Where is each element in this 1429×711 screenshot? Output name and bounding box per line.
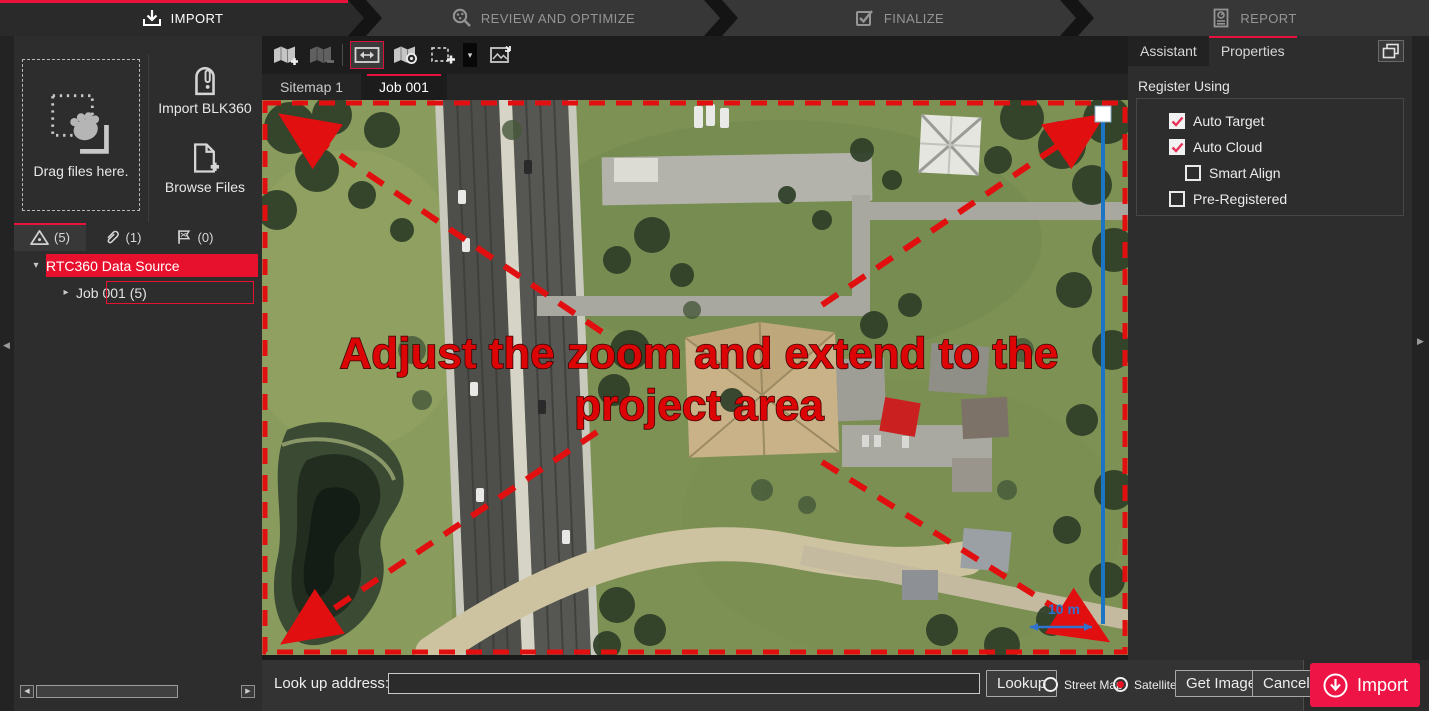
dropzone-label: Drag files here. xyxy=(34,163,129,179)
expand-right-icon[interactable]: ▶ xyxy=(1417,336,1424,347)
tab-links[interactable]: (0) xyxy=(158,223,230,251)
right-panel-tabs: Assistant Properties xyxy=(1128,36,1412,66)
blk360-device-icon xyxy=(192,64,218,96)
checkbox-label: Auto Target xyxy=(1193,113,1264,129)
tab-sitemap-1[interactable]: Sitemap 1 xyxy=(262,74,361,100)
workflow-step-label: REVIEW AND OPTIMIZE xyxy=(481,11,635,26)
file-plus-icon xyxy=(191,141,219,175)
properties-panel: Assistant Properties Register Using Auto… xyxy=(1128,36,1412,660)
checkbox-unchecked-icon xyxy=(1185,165,1201,181)
tree-item-label: RTC360 Data Source xyxy=(46,258,180,274)
add-sitemap-button[interactable] xyxy=(268,41,302,69)
address-lookup-bar: Look up address: Lookup Street Map Satel… xyxy=(262,660,1429,711)
scroll-right-button[interactable]: ▶ xyxy=(241,685,255,698)
register-using-group: Auto Target Auto Cloud Smart Align Pre-R… xyxy=(1136,98,1404,216)
workflow-step-label: FINALIZE xyxy=(884,11,944,26)
left-collapse-strip[interactable]: ◀ xyxy=(0,36,14,711)
sitemap-toolbar: ▾ xyxy=(262,36,1128,74)
checkbox-unchecked-icon xyxy=(1169,191,1185,207)
satellite-map-canvas[interactable]: 10 m Adjust the zoom and extend to the p… xyxy=(262,100,1128,655)
tree-item-job-001[interactable]: ▸ Job 001 (5) xyxy=(60,281,262,304)
checkbox-label: Pre-Registered xyxy=(1193,191,1287,207)
scale-label: 10 m xyxy=(1048,601,1080,617)
caret-down-icon[interactable]: ▾ xyxy=(30,260,42,271)
checkbox-checked-icon xyxy=(1169,113,1185,129)
popout-panel-button[interactable] xyxy=(1378,40,1404,62)
divider xyxy=(148,54,149,222)
workflow-step-import[interactable]: IMPORT xyxy=(0,0,364,36)
map-scale-bar: 10 m xyxy=(1030,601,1092,631)
workflow-step-label: IMPORT xyxy=(171,11,224,26)
select-region-button[interactable] xyxy=(426,41,460,69)
links-flag-icon xyxy=(175,228,193,246)
scrollbar-thumb[interactable] xyxy=(36,685,178,698)
import-source-panel: Drag files here. Import BLK360 Browse Fi… xyxy=(14,36,262,711)
report-document-icon xyxy=(1210,7,1232,29)
import-download-icon xyxy=(141,7,163,29)
tree-item-rtc360-data-source[interactable]: ▾ RTC360 Data Source xyxy=(30,254,262,277)
drag-files-dropzone[interactable]: Drag files here. xyxy=(22,59,140,211)
focus-outline xyxy=(106,281,254,304)
export-image-button[interactable] xyxy=(484,41,518,69)
extend-region-icon xyxy=(354,44,380,66)
download-circle-icon xyxy=(1322,672,1349,699)
layered-windows-icon xyxy=(1382,43,1400,59)
scroll-right-icon: ▶ xyxy=(245,688,250,695)
workflow-step-review[interactable]: REVIEW AND OPTIMIZE xyxy=(366,0,720,36)
radio-selected-icon xyxy=(1113,677,1128,692)
extend-arrows xyxy=(288,120,1100,638)
dropdown-caret-icon: ▾ xyxy=(468,50,473,61)
scroll-left-icon: ◀ xyxy=(24,688,29,695)
sitemap-tab-strip: Sitemap 1 Job 001 xyxy=(262,74,1128,100)
workflow-step-report[interactable]: REPORT xyxy=(1078,0,1429,36)
import-blk360-label: Import BLK360 xyxy=(158,100,251,116)
warning-triangle-icon xyxy=(30,229,49,246)
tab-count: (1) xyxy=(126,230,142,245)
lookup-address-label: Look up address: xyxy=(274,675,389,692)
tab-properties[interactable]: Properties xyxy=(1209,36,1297,66)
satellite-radio[interactable]: Satellite xyxy=(1113,677,1177,692)
checkbox-check-icon xyxy=(854,7,876,29)
street-map-radio[interactable]: Street Map xyxy=(1043,677,1123,692)
tab-label: Sitemap 1 xyxy=(280,79,343,95)
checkbox-auto-cloud[interactable]: Auto Cloud xyxy=(1169,139,1262,155)
map-location-button[interactable] xyxy=(388,41,422,69)
extend-map-region-button[interactable] xyxy=(350,41,384,69)
image-export-icon xyxy=(489,44,513,66)
browse-files-button[interactable]: Browse Files xyxy=(150,141,260,195)
tab-count: (0) xyxy=(198,230,214,245)
browse-files-label: Browse Files xyxy=(165,179,245,195)
map-instruction-line1: Adjust the zoom and extend to the xyxy=(340,329,1059,378)
checkbox-checked-icon xyxy=(1169,139,1185,155)
right-expand-strip[interactable]: ▶ xyxy=(1412,36,1429,660)
tab-attachments[interactable]: (1) xyxy=(86,223,158,251)
checkbox-smart-align[interactable]: Smart Align xyxy=(1185,165,1281,181)
import-button-label: Import xyxy=(1357,675,1408,696)
import-blk360-button[interactable]: Import BLK360 xyxy=(150,64,260,116)
scroll-left-button[interactable]: ◀ xyxy=(20,685,34,698)
magnifier-targets-icon xyxy=(451,7,473,29)
map-plus-icon xyxy=(272,44,299,67)
data-source-tree: ▾ RTC360 Data Source ▸ Job 001 (5) xyxy=(14,254,262,304)
import-button[interactable]: Import xyxy=(1310,663,1420,707)
tab-label: Properties xyxy=(1221,43,1285,59)
tab-assistant[interactable]: Assistant xyxy=(1128,36,1209,66)
map-instruction-line2: project area xyxy=(574,381,824,430)
select-region-dropdown[interactable]: ▾ xyxy=(463,43,477,67)
paperclip-icon xyxy=(103,228,121,246)
radio-unselected-icon xyxy=(1043,677,1058,692)
map-pin-icon xyxy=(392,44,419,67)
workflow-bar: IMPORT REVIEW AND OPTIMIZE FINALIZE xyxy=(0,0,1429,36)
remove-sitemap-button[interactable] xyxy=(304,41,338,69)
tab-label: Assistant xyxy=(1140,43,1197,59)
checkbox-label: Smart Align xyxy=(1209,165,1281,181)
checkbox-pre-registered[interactable]: Pre-Registered xyxy=(1169,191,1287,207)
map-minus-icon xyxy=(308,44,335,67)
collapse-left-icon[interactable]: ◀ xyxy=(3,340,10,351)
tab-label: Job 001 xyxy=(379,79,429,95)
register-using-title: Register Using xyxy=(1138,78,1230,94)
tab-count: (5) xyxy=(54,230,70,245)
dashed-rect-plus-icon xyxy=(430,44,456,66)
toolbar-separator xyxy=(342,44,343,66)
checkbox-label: Auto Cloud xyxy=(1193,139,1262,155)
caret-right-icon[interactable]: ▸ xyxy=(60,287,72,298)
tab-issues[interactable]: (5) xyxy=(14,223,86,251)
workflow-step-finalize[interactable]: FINALIZE xyxy=(722,0,1076,36)
source-list-tabs: (5) (1) (0) xyxy=(14,223,262,251)
drag-hand-icon xyxy=(48,91,114,157)
horizontal-scrollbar[interactable]: ◀ ▶ xyxy=(14,684,262,700)
radio-label: Satellite xyxy=(1134,678,1177,692)
address-input[interactable] xyxy=(388,673,980,694)
map-overlay-layer: 10 m Adjust the zoom and extend to the p… xyxy=(262,100,1128,655)
checkbox-auto-target[interactable]: Auto Target xyxy=(1169,113,1264,129)
workflow-step-label: REPORT xyxy=(1240,11,1296,26)
region-resize-handle[interactable] xyxy=(1095,106,1111,122)
tab-job-001[interactable]: Job 001 xyxy=(361,74,447,100)
